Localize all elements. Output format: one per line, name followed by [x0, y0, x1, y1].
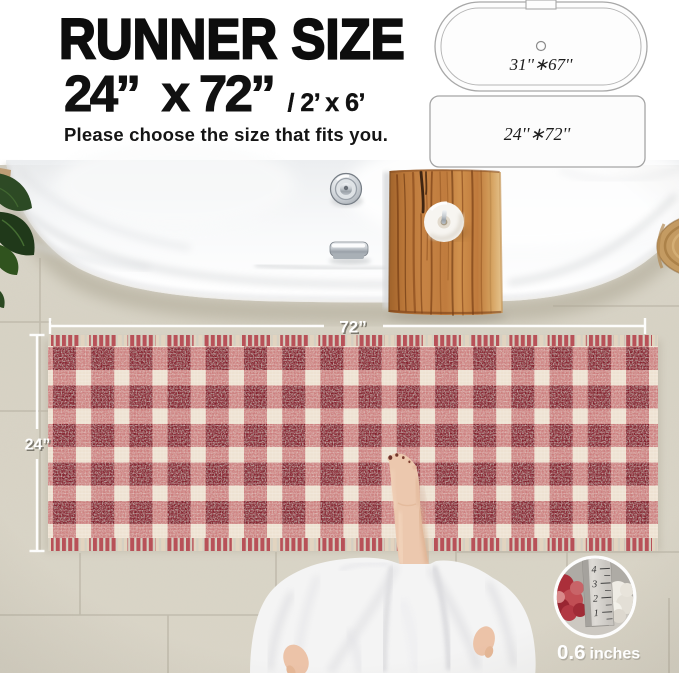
svg-text:31''∗67'': 31''∗67'' — [509, 55, 573, 74]
svg-text:24''∗72'': 24''∗72'' — [504, 124, 572, 144]
